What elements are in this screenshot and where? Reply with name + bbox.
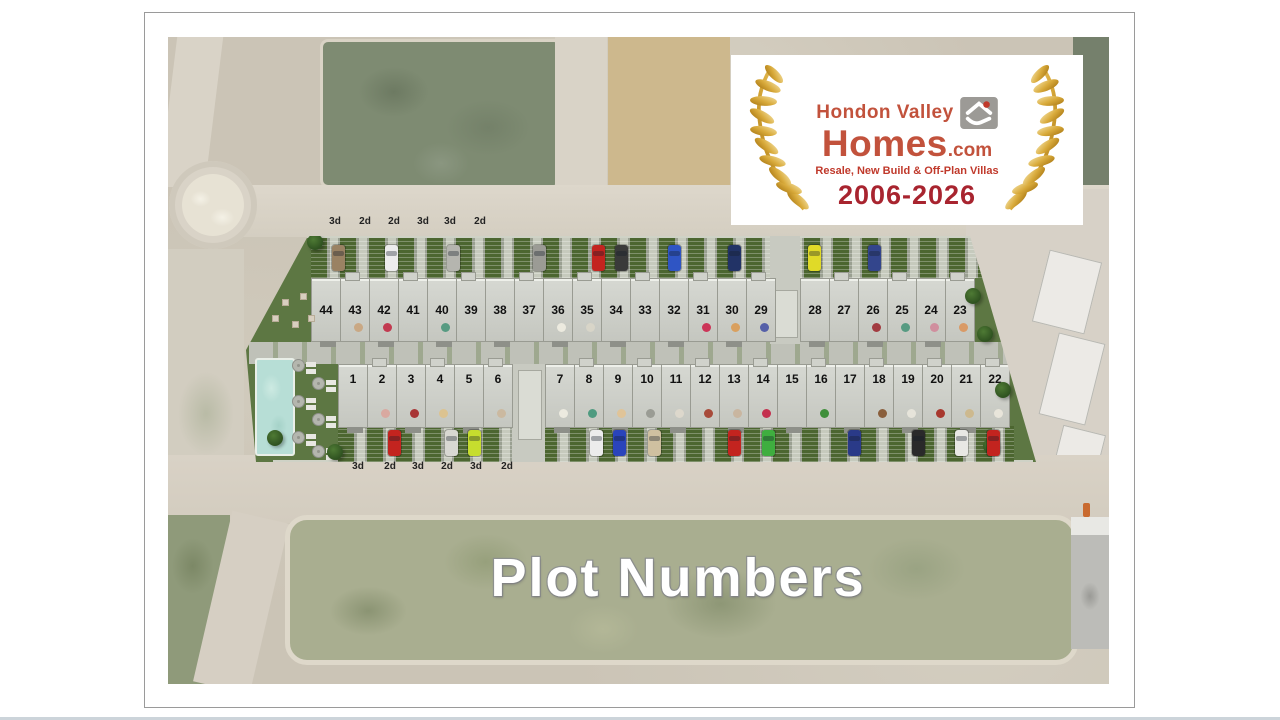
- plot-number: 18: [872, 373, 885, 385]
- brand-line1: Hondon Valley: [816, 102, 953, 124]
- plot-house: 14: [748, 364, 778, 428]
- plot-row-bottom-right: 78910111213141516171819202122: [545, 364, 1009, 428]
- roof-furniture: [791, 409, 800, 418]
- roof-furniture: [814, 323, 823, 332]
- plot-number: 41: [406, 304, 419, 316]
- plot-number: 7: [557, 373, 564, 385]
- roof-furniture: [470, 323, 479, 332]
- plot-house: 28: [800, 278, 830, 342]
- plot-row-top-right: 282726252423: [800, 278, 974, 342]
- plot-number: 22: [988, 373, 1001, 385]
- roof-furniture: [731, 323, 740, 332]
- roof-furniture: [410, 409, 419, 418]
- plot-row-bottom-left: 123456: [338, 364, 512, 428]
- plot-number: 4: [437, 373, 444, 385]
- roof-furniture: [352, 409, 361, 418]
- plot-house: 36: [543, 278, 573, 342]
- plot-house: 24: [916, 278, 946, 342]
- plot-number: 42: [377, 304, 390, 316]
- plot-number: 43: [348, 304, 361, 316]
- plot-house: 1: [338, 364, 368, 428]
- entry-structure-top: [774, 290, 798, 338]
- plot-house: 22: [980, 364, 1010, 428]
- plot-house: 2: [367, 364, 397, 428]
- roof-furniture: [901, 323, 910, 332]
- garden-furniture: [273, 316, 278, 321]
- tree-icon: [977, 326, 993, 342]
- plot-house: 26: [858, 278, 888, 342]
- entry-structure-bottom: [518, 370, 542, 440]
- roof-furniture: [872, 323, 881, 332]
- roof-furniture: [733, 409, 742, 418]
- roof-furniture: [820, 409, 829, 418]
- roof-furniture: [325, 323, 334, 332]
- garden-furniture: [283, 300, 288, 305]
- plot-number: 35: [580, 304, 593, 316]
- roof-furniture: [439, 409, 448, 418]
- roof-furniture: [646, 409, 655, 418]
- central-street: [249, 342, 1021, 364]
- roof-furniture: [354, 323, 363, 332]
- roof-furniture: [528, 323, 537, 332]
- plot-house: 35: [572, 278, 602, 342]
- plot-number: 15: [785, 373, 798, 385]
- roof-furniture: [557, 323, 566, 332]
- plot-house: 7: [545, 364, 575, 428]
- logo-card: Hondon Valley Homes.com Resale, New Buil…: [731, 55, 1083, 225]
- plot-number: 8: [586, 373, 593, 385]
- plot-number: 12: [698, 373, 711, 385]
- roof-furniture: [878, 409, 887, 418]
- plot-house: 21: [951, 364, 981, 428]
- roof-furniture: [965, 409, 974, 418]
- garden-furniture: [293, 322, 298, 327]
- garden-furniture: [267, 292, 272, 297]
- plot-number: 37: [522, 304, 535, 316]
- dirt-parcel-left: [168, 249, 244, 455]
- plot-house: 40: [427, 278, 457, 342]
- roof-furniture: [499, 323, 508, 332]
- plot-house: 12: [690, 364, 720, 428]
- roof-furniture: [497, 409, 506, 418]
- plot-house: 15: [777, 364, 807, 428]
- laurel-branch-icon: [1001, 61, 1067, 213]
- roof-furniture: [702, 323, 711, 332]
- road-top-middle-vertical: [555, 37, 607, 193]
- plot-house: 39: [456, 278, 486, 342]
- plot-house: 42: [369, 278, 399, 342]
- plot-number: 34: [609, 304, 622, 316]
- plot-number: 9: [615, 373, 622, 385]
- roof-furniture: [412, 323, 421, 332]
- plot-house: 11: [661, 364, 691, 428]
- existing-buildings-top: [608, 37, 730, 185]
- plot-house: 43: [340, 278, 370, 342]
- plot-house: 37: [514, 278, 544, 342]
- plot-number: 32: [667, 304, 680, 316]
- plot-house: 30: [717, 278, 747, 342]
- plot-number: 14: [756, 373, 769, 385]
- roof-furniture: [441, 323, 450, 332]
- plot-number: 33: [638, 304, 651, 316]
- roof-furniture: [559, 409, 568, 418]
- plot-house: 17: [835, 364, 865, 428]
- plot-house: 8: [574, 364, 604, 428]
- roof-furniture: [644, 323, 653, 332]
- roundabout: [169, 161, 257, 249]
- roof-furniture: [704, 409, 713, 418]
- plot-number: 28: [808, 304, 821, 316]
- green-field-top-left: [320, 39, 562, 188]
- plot-house: 6: [483, 364, 513, 428]
- roof-furniture: [936, 409, 945, 418]
- plot-row-top-left: 44434241403938373635343332313029: [311, 278, 775, 342]
- garden-furniture: [301, 294, 306, 299]
- plot-number: 30: [725, 304, 738, 316]
- plot-house: 19: [893, 364, 923, 428]
- plot-number: 44: [319, 304, 332, 316]
- plot-number: 3: [408, 373, 415, 385]
- roof-furniture: [959, 323, 968, 332]
- roof-furniture: [907, 409, 916, 418]
- plot-number: 29: [754, 304, 767, 316]
- roof-furniture: [381, 409, 390, 418]
- plot-house: 34: [601, 278, 631, 342]
- roof-furniture: [675, 409, 684, 418]
- roof-furniture: [760, 323, 769, 332]
- roof-furniture: [762, 409, 771, 418]
- plot-number: 40: [435, 304, 448, 316]
- roof-furniture: [930, 323, 939, 332]
- roof-furniture: [588, 409, 597, 418]
- roof-furniture: [843, 323, 852, 332]
- plot-number: 17: [843, 373, 856, 385]
- plot-number: 2: [379, 373, 386, 385]
- plot-house: 41: [398, 278, 428, 342]
- plot-house: 32: [659, 278, 689, 342]
- plot-number: 11: [670, 373, 683, 385]
- parasol-icon: [313, 446, 324, 457]
- plot-house: 38: [485, 278, 515, 342]
- plot-house: 33: [630, 278, 660, 342]
- plot-numbers-title: Plot Numbers: [328, 547, 1028, 609]
- brand-line2: Homes: [822, 123, 948, 164]
- plot-house: 31: [688, 278, 718, 342]
- logo-tagline: Resale, New Build & Off-Plan Villas: [815, 165, 998, 177]
- roof-furniture: [994, 409, 1003, 418]
- parasol-icon: [313, 414, 324, 425]
- plot-house: 3: [396, 364, 426, 428]
- parasol-icon: [313, 378, 324, 389]
- plot-number: 1: [350, 373, 357, 385]
- plot-house: 29: [746, 278, 776, 342]
- plot-number: 38: [493, 304, 506, 316]
- plot-number: 26: [866, 304, 879, 316]
- plot-number: 25: [895, 304, 908, 316]
- tree-icon: [251, 276, 267, 292]
- laurel-branch-icon: [747, 61, 813, 213]
- plot-house: 4: [425, 364, 455, 428]
- plot-number: 23: [953, 304, 966, 316]
- roof-furniture: [468, 409, 477, 418]
- plot-number: 6: [495, 373, 502, 385]
- existing-buildings-bottom-right: [1071, 517, 1109, 649]
- plot-number: 24: [924, 304, 937, 316]
- plot-house: 18: [864, 364, 894, 428]
- logo-years: 2006-2026: [838, 180, 976, 211]
- plot-house: 9: [603, 364, 633, 428]
- plot-house: 16: [806, 364, 836, 428]
- roof-furniture: [617, 409, 626, 418]
- plot-number: 36: [551, 304, 564, 316]
- roof-furniture: [586, 323, 595, 332]
- plot-house: 25: [887, 278, 917, 342]
- roof-furniture: [849, 409, 858, 418]
- plot-number: 19: [901, 373, 914, 385]
- slide-canvas: 44434241403938373635343332313029 2827262…: [0, 0, 1280, 720]
- plot-number: 39: [464, 304, 477, 316]
- plot-house: 5: [454, 364, 484, 428]
- plot-number: 13: [727, 373, 740, 385]
- roof-furniture: [383, 323, 392, 332]
- plot-number: 10: [640, 373, 653, 385]
- brand-suffix: .com: [948, 140, 992, 161]
- plot-house: 44: [311, 278, 341, 342]
- parked-car: [1083, 503, 1090, 517]
- plot-number: 27: [837, 304, 850, 316]
- roof-furniture: [673, 323, 682, 332]
- plot-house: 23: [945, 278, 975, 342]
- plot-house: 20: [922, 364, 952, 428]
- plot-number: 31: [696, 304, 709, 316]
- swimming-pool: [255, 358, 295, 456]
- road-bottom-horizontal: [168, 455, 1109, 523]
- site-plan: 44434241403938373635343332313029 2827262…: [243, 232, 1043, 464]
- plot-number: 20: [930, 373, 943, 385]
- plot-number: 16: [814, 373, 827, 385]
- plot-number: 21: [959, 373, 972, 385]
- plot-house: 27: [829, 278, 859, 342]
- plot-house: 10: [632, 364, 662, 428]
- plot-number: 5: [466, 373, 473, 385]
- roof-furniture: [615, 323, 624, 332]
- plot-house: 13: [719, 364, 749, 428]
